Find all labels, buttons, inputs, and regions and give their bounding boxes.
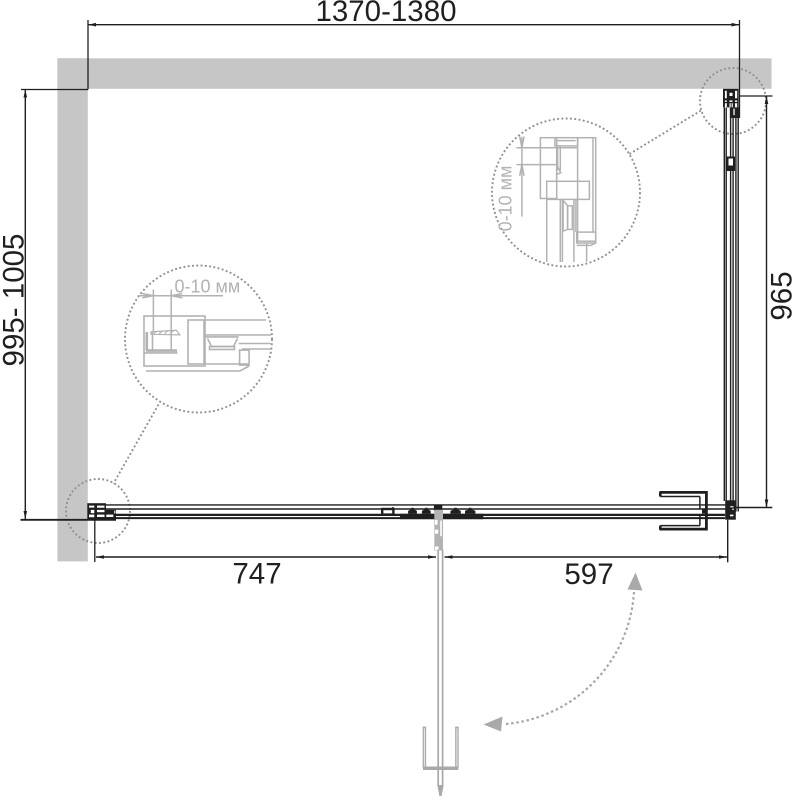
svg-text:995- 1005: 995- 1005 <box>0 234 31 367</box>
svg-text:1370-1380: 1370-1380 <box>315 0 456 28</box>
svg-text:0-10 мм: 0-10 мм <box>495 166 515 232</box>
svg-text:597: 597 <box>564 558 613 591</box>
svg-text:965: 965 <box>766 271 793 320</box>
svg-text:0-10 мм: 0-10 мм <box>175 276 241 296</box>
svg-text:747: 747 <box>232 558 281 591</box>
